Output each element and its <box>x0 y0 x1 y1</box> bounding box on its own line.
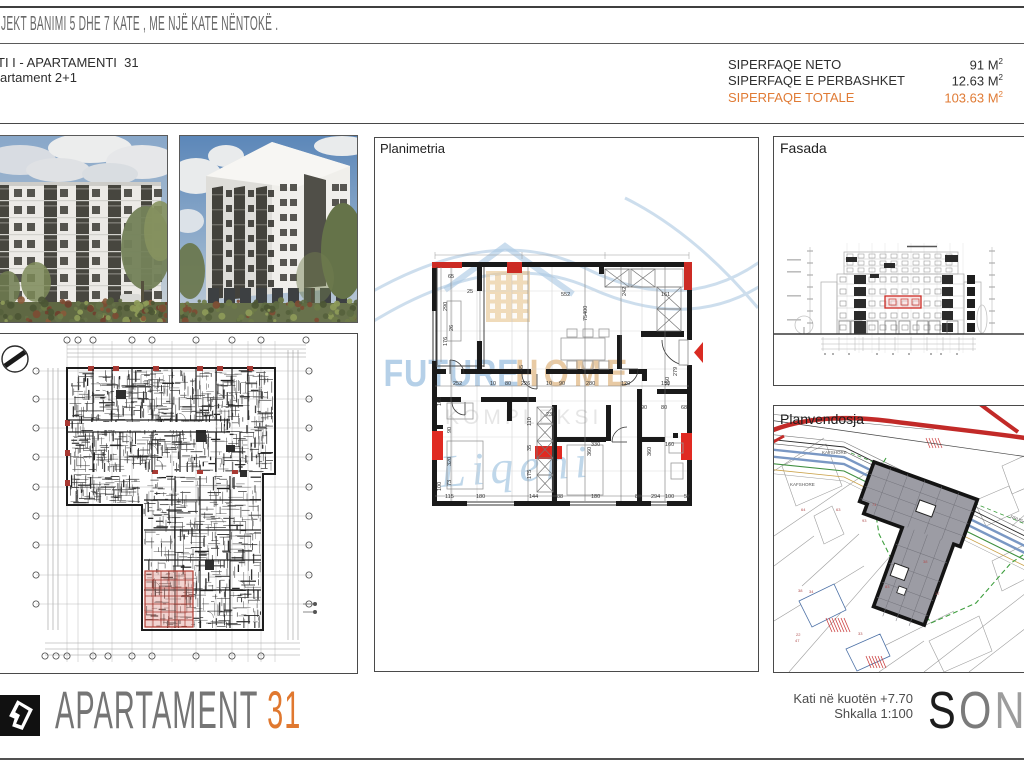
svg-text:280: 280 <box>586 381 595 387</box>
svg-text:35: 35 <box>527 445 533 451</box>
svg-text:64: 64 <box>801 507 806 512</box>
svg-text:88: 88 <box>557 494 563 500</box>
svg-text:279: 279 <box>673 367 679 376</box>
svg-text:38: 38 <box>923 559 928 564</box>
svg-text:75400: 75400 <box>583 306 589 321</box>
svg-text:22: 22 <box>796 632 801 637</box>
svg-text:242: 242 <box>622 287 628 296</box>
svg-text:144: 144 <box>529 494 538 500</box>
svg-text:175: 175 <box>527 470 533 479</box>
svg-text:KAFSHORE: KAFSHORE <box>822 450 847 455</box>
svg-text:150: 150 <box>665 377 671 386</box>
svg-text:KAFSHORE: KAFSHORE <box>790 482 815 487</box>
svg-text:90: 90 <box>559 381 565 387</box>
svg-text:160: 160 <box>665 442 674 448</box>
svg-text:230: 230 <box>546 412 555 418</box>
svg-text:294: 294 <box>651 494 660 500</box>
svg-text:65: 65 <box>448 274 454 280</box>
svg-text:25: 25 <box>467 289 473 295</box>
svg-text:33: 33 <box>858 631 863 636</box>
svg-text:161: 161 <box>661 292 670 298</box>
svg-text:83: 83 <box>885 584 890 589</box>
svg-text:38: 38 <box>798 588 803 593</box>
svg-text:10: 10 <box>546 381 552 387</box>
svg-text:90: 90 <box>447 427 453 433</box>
svg-text:290: 290 <box>443 302 449 311</box>
svg-text:226: 226 <box>521 381 530 387</box>
svg-text:120: 120 <box>621 381 630 387</box>
svg-text:34: 34 <box>809 589 814 594</box>
svg-text:100: 100 <box>437 482 443 491</box>
svg-text:110: 110 <box>527 417 533 426</box>
svg-text:RRUGA: RRUGA <box>1010 514 1024 524</box>
svg-text:26: 26 <box>449 325 455 331</box>
svg-text:73: 73 <box>447 480 453 486</box>
svg-text:100: 100 <box>665 494 674 500</box>
svg-text:360: 360 <box>587 447 593 456</box>
svg-text:45: 45 <box>519 365 525 371</box>
svg-text:52: 52 <box>684 494 690 500</box>
svg-text:160: 160 <box>437 397 443 406</box>
svg-text:360: 360 <box>647 447 653 456</box>
svg-text:68: 68 <box>681 405 687 411</box>
svg-text:90: 90 <box>641 405 647 411</box>
svg-text:252: 252 <box>453 381 462 387</box>
svg-text:74: 74 <box>872 502 877 507</box>
svg-text:180: 180 <box>476 494 485 500</box>
svg-text:10: 10 <box>490 381 496 387</box>
svg-text:115: 115 <box>445 494 454 500</box>
svg-text:80: 80 <box>505 381 511 387</box>
svg-text:17: 17 <box>935 591 940 596</box>
svg-text:320: 320 <box>447 457 453 466</box>
svg-text:47: 47 <box>795 638 800 643</box>
svg-text:80: 80 <box>661 405 667 411</box>
svg-text:82: 82 <box>635 494 641 500</box>
svg-text:180: 180 <box>591 494 600 500</box>
svg-text:552: 552 <box>561 292 570 298</box>
svg-text:93: 93 <box>862 518 867 523</box>
svg-text:176: 176 <box>443 337 449 346</box>
svg-text:63: 63 <box>836 507 841 512</box>
